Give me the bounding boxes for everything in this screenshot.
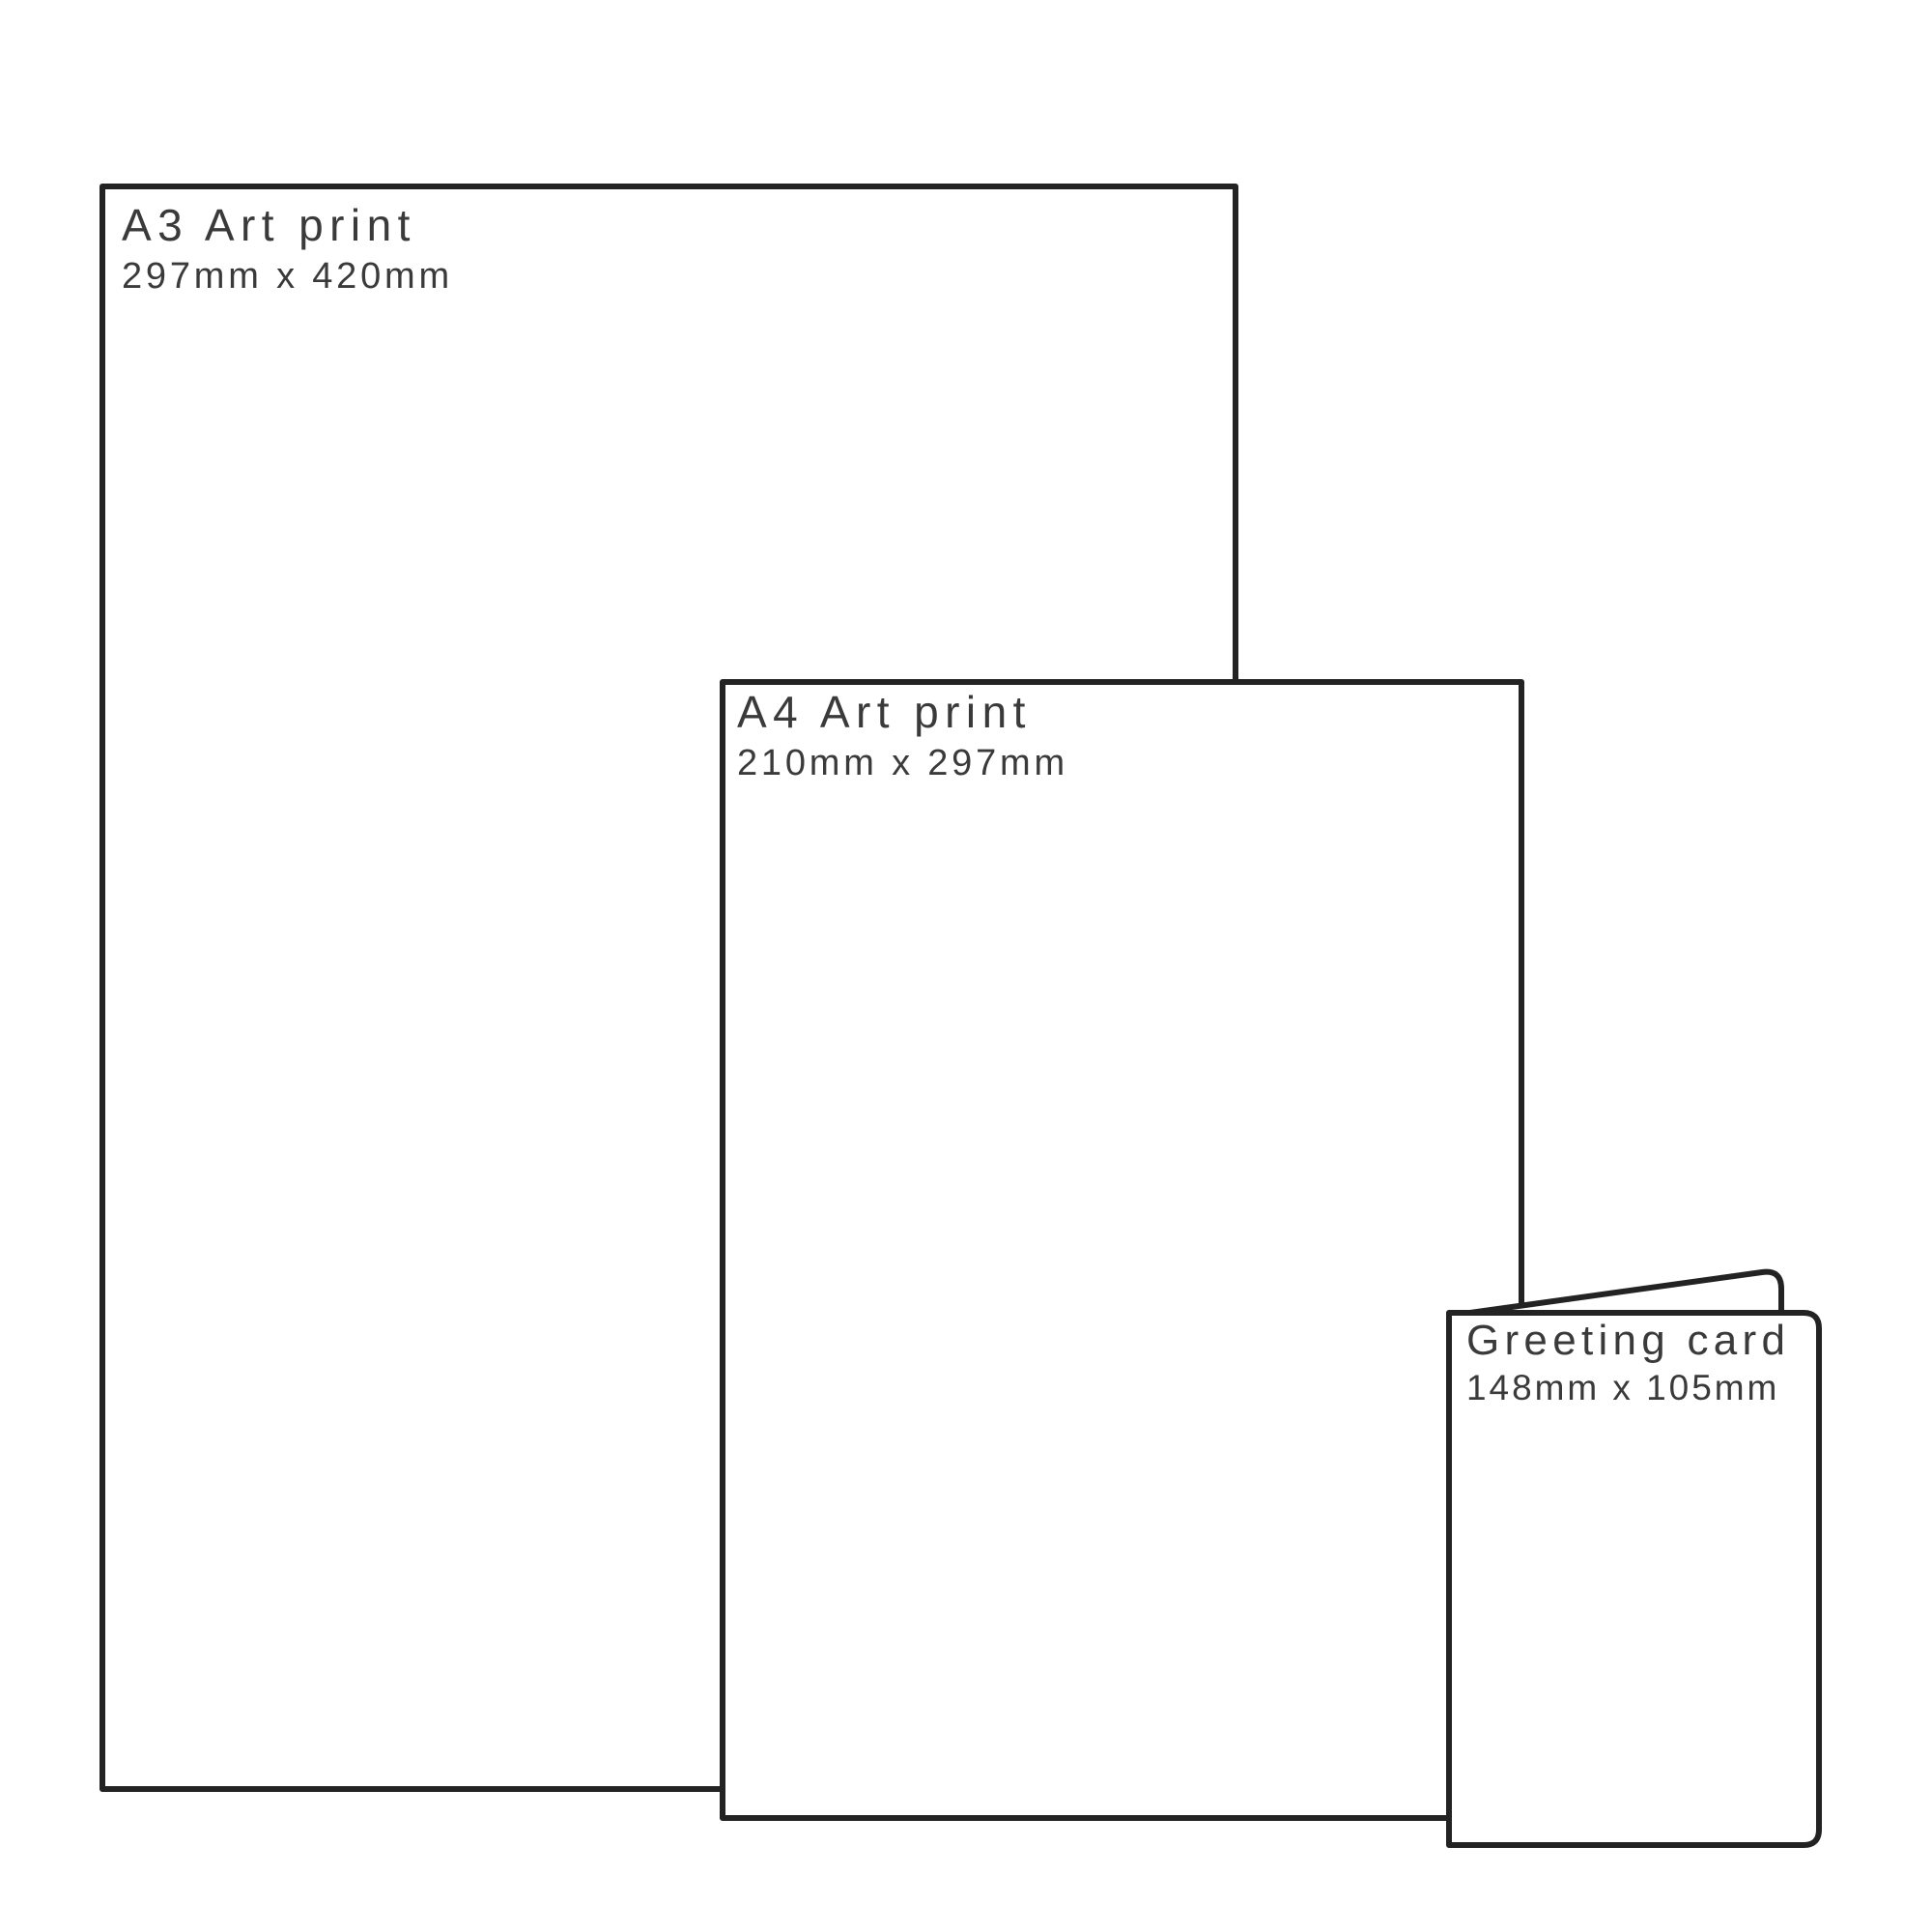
a3-print-title: A3 Art print xyxy=(122,203,453,247)
a4-print-label: A4 Art print 210mm x 297mm xyxy=(737,690,1068,781)
greeting-card-label: Greeting card 148mm x 105mm xyxy=(1466,1320,1790,1406)
a3-print-label: A3 Art print 297mm x 420mm xyxy=(122,203,453,295)
a4-print-outline xyxy=(723,682,1521,1818)
a4-print-dimensions: 210mm x 297mm xyxy=(737,745,1068,781)
greeting-card-dimensions: 148mm x 105mm xyxy=(1466,1370,1790,1406)
a4-print-title: A4 Art print xyxy=(737,690,1068,734)
print-size-comparison-diagram: A3 Art print 297mm x 420mm A4 Art print … xyxy=(0,0,1932,1932)
greeting-card-title: Greeting card xyxy=(1466,1320,1790,1362)
a3-print-dimensions: 297mm x 420mm xyxy=(122,258,453,295)
